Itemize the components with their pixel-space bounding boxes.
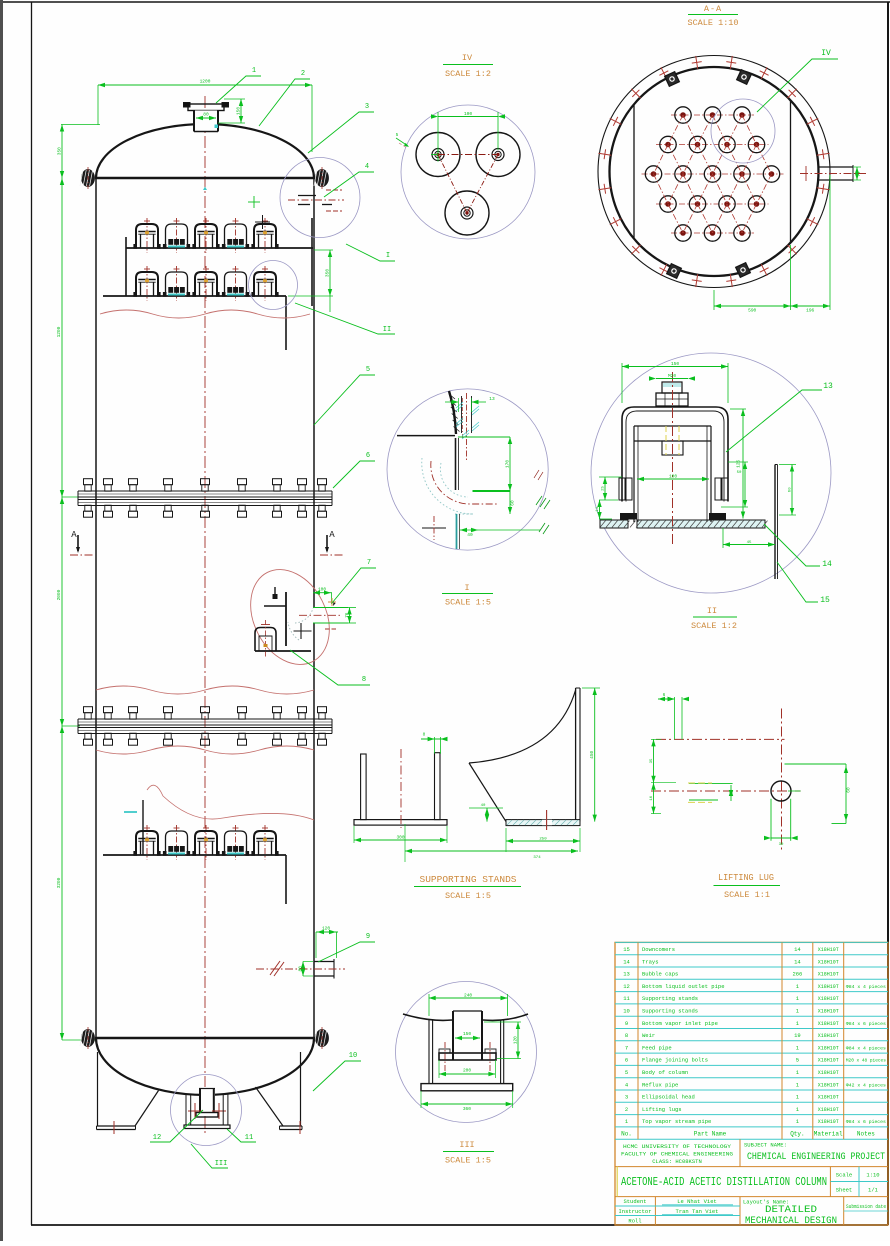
- svg-text:X18H10T: X18H10T: [818, 947, 839, 953]
- svg-text:Le Nhat Viet: Le Nhat Viet: [677, 1198, 717, 1205]
- svg-text:5: 5: [396, 132, 399, 138]
- svg-text:X18H10T: X18H10T: [818, 1107, 839, 1113]
- svg-text:350: 350: [57, 147, 63, 155]
- svg-text:A: A: [329, 530, 335, 540]
- svg-text:2000: 2000: [56, 589, 62, 600]
- svg-text:FACULTY OF CHEMICAL ENGINEERIN: FACULTY OF CHEMICAL ENGINEERING: [621, 1151, 733, 1158]
- svg-text:X18H10T: X18H10T: [818, 1058, 839, 1064]
- svg-text:4: 4: [365, 163, 369, 171]
- svg-text:Scale: Scale: [836, 1172, 853, 1179]
- svg-text:Trays: Trays: [642, 958, 659, 965]
- svg-text:150: 150: [463, 1031, 471, 1037]
- svg-text:1200: 1200: [56, 326, 62, 337]
- svg-text:30: 30: [779, 843, 784, 847]
- svg-text:14: 14: [822, 560, 832, 569]
- svg-text:HCMC UNIVERSITY OF TECHNOLOGY: HCMC UNIVERSITY OF TECHNOLOGY: [623, 1143, 732, 1150]
- svg-text:SCALE 1:5: SCALE 1:5: [445, 1156, 491, 1166]
- svg-text:5: 5: [796, 1057, 799, 1064]
- svg-text:150: 150: [671, 361, 679, 367]
- svg-text:SCALE 1:2: SCALE 1:2: [691, 621, 737, 631]
- svg-text:12: 12: [623, 983, 630, 990]
- svg-text:Reflux pipe: Reflux pipe: [642, 1081, 678, 1088]
- svg-text:M20 x 48 pieces: M20 x 48 pieces: [846, 1058, 886, 1064]
- svg-text:Submission date: Submission date: [846, 1204, 886, 1210]
- svg-text:SUPPORTING STANDS: SUPPORTING STANDS: [420, 875, 517, 885]
- svg-text:Weir: Weir: [642, 1032, 655, 1039]
- svg-text:125: 125: [736, 459, 742, 467]
- svg-text:10: 10: [349, 1052, 357, 1060]
- svg-text:Feed pipe: Feed pipe: [642, 1044, 672, 1051]
- svg-text:7: 7: [625, 1044, 628, 1051]
- svg-text:Φ84 x 4 pieces: Φ84 x 4 pieces: [846, 984, 886, 990]
- svg-text:CHEMICAL ENGINEERING PROJECT: CHEMICAL ENGINEERING PROJECT: [747, 1151, 885, 1163]
- svg-text:Bottom vapor inlet pipe: Bottom vapor inlet pipe: [642, 1020, 718, 1027]
- svg-text:X18H10T: X18H10T: [818, 1119, 839, 1125]
- svg-text:Lifting lugs: Lifting lugs: [642, 1106, 682, 1113]
- svg-text:374: 374: [533, 856, 541, 860]
- svg-text:Φ84 x 4 pieces: Φ84 x 4 pieces: [846, 1045, 886, 1051]
- svg-text:3: 3: [365, 103, 369, 111]
- svg-text:X18H10T: X18H10T: [818, 1009, 839, 1015]
- svg-text:X18H10T: X18H10T: [818, 959, 839, 965]
- svg-text:13: 13: [623, 971, 630, 978]
- svg-text:100: 100: [669, 474, 677, 480]
- svg-text:CLASS: HC08KSTN: CLASS: HC08KSTN: [652, 1158, 702, 1165]
- svg-text:SCALE 1:10: SCALE 1:10: [687, 18, 738, 28]
- svg-text:X18H10T: X18H10T: [818, 972, 839, 978]
- svg-text:X18H10T: X18H10T: [818, 984, 839, 990]
- svg-text:5: 5: [366, 366, 370, 374]
- svg-text:6: 6: [366, 452, 370, 460]
- svg-text:14: 14: [794, 946, 801, 953]
- svg-text:Downcomers: Downcomers: [642, 946, 675, 953]
- svg-text:8: 8: [423, 732, 426, 738]
- svg-text:9: 9: [366, 933, 370, 941]
- svg-text:250: 250: [539, 838, 547, 842]
- svg-text:X18H10T: X18H10T: [818, 1045, 839, 1051]
- svg-text:14: 14: [623, 958, 630, 965]
- svg-text:X18H10T: X18H10T: [818, 1095, 839, 1101]
- svg-text:11: 11: [623, 995, 630, 1002]
- svg-text:16: 16: [650, 795, 654, 800]
- svg-text:80: 80: [298, 966, 304, 972]
- svg-text:6: 6: [625, 1057, 628, 1064]
- svg-text:Supporting stands: Supporting stands: [642, 1008, 698, 1015]
- svg-text:170: 170: [505, 460, 511, 468]
- svg-text:ACETONE-ACID ACETIC DISTILLATI: ACETONE-ACID ACETIC DISTILLATION COLUMN: [621, 1176, 827, 1189]
- svg-text:Qty.: Qty.: [790, 1131, 804, 1138]
- svg-text:120: 120: [513, 1036, 519, 1044]
- svg-text:SCALE 1:5: SCALE 1:5: [445, 598, 491, 608]
- svg-text:360: 360: [463, 1106, 471, 1112]
- svg-text:III: III: [459, 1140, 474, 1150]
- svg-text:13: 13: [823, 382, 833, 391]
- svg-text:150: 150: [236, 107, 242, 115]
- svg-text:Notes: Notes: [857, 1131, 875, 1138]
- svg-text:5: 5: [625, 1069, 628, 1076]
- svg-text:350: 350: [325, 269, 331, 277]
- svg-text:15: 15: [820, 596, 830, 605]
- svg-text:Tran Tan Viet: Tran Tan Viet: [676, 1208, 719, 1215]
- svg-text:Φ42 x 4 pieces: Φ42 x 4 pieces: [846, 1082, 886, 1088]
- svg-text:Bottom liquid outlet pipe: Bottom liquid outlet pipe: [642, 983, 725, 990]
- svg-text:6: 6: [663, 692, 666, 698]
- svg-text:Instructor: Instructor: [618, 1208, 651, 1215]
- svg-text:12: 12: [153, 1134, 161, 1142]
- svg-text:240: 240: [464, 993, 472, 999]
- svg-text:120: 120: [322, 926, 330, 932]
- svg-text:Φ84 x 6 pieces: Φ84 x 6 pieces: [846, 1021, 886, 1027]
- svg-text:Body of column: Body of column: [642, 1069, 688, 1076]
- svg-text:IV: IV: [821, 49, 831, 58]
- svg-text:Φ84 x 6 pieces: Φ84 x 6 pieces: [846, 1119, 886, 1125]
- svg-text:II: II: [383, 326, 391, 334]
- svg-text:60: 60: [789, 487, 793, 492]
- svg-text:Material: Material: [814, 1131, 843, 1138]
- svg-text:A-A: A-A: [704, 4, 722, 14]
- svg-text:11: 11: [245, 1134, 253, 1142]
- svg-text:76: 76: [344, 612, 350, 618]
- svg-text:MECHANICAL DESIGN: MECHANICAL DESIGN: [745, 1215, 837, 1227]
- svg-text:100: 100: [464, 111, 472, 117]
- svg-text:X18H10T: X18H10T: [818, 1082, 839, 1088]
- svg-text:I: I: [464, 583, 469, 593]
- svg-text:M20: M20: [668, 373, 676, 379]
- svg-text:13: 13: [489, 396, 495, 402]
- svg-text:14: 14: [794, 958, 801, 965]
- svg-text:Flange joining bolts: Flange joining bolts: [642, 1057, 708, 1064]
- svg-text:450: 450: [589, 750, 595, 758]
- svg-text:3200: 3200: [56, 877, 62, 888]
- svg-text:Sheet: Sheet: [836, 1187, 853, 1194]
- svg-text:1/1: 1/1: [868, 1187, 879, 1194]
- svg-text:25: 25: [602, 486, 606, 491]
- svg-text:III: III: [215, 1160, 228, 1168]
- svg-text:1:10: 1:10: [866, 1172, 879, 1179]
- svg-text:No.: No.: [621, 1131, 632, 1138]
- svg-text:SCALE 1:5: SCALE 1:5: [445, 891, 491, 901]
- svg-text:19: 19: [794, 1032, 801, 1039]
- svg-text:X18H10T: X18H10T: [818, 1033, 839, 1039]
- svg-text:196: 196: [806, 308, 814, 314]
- svg-text:9: 9: [625, 1020, 628, 1027]
- svg-text:X18H10T: X18H10T: [818, 1070, 839, 1076]
- svg-text:40: 40: [467, 532, 473, 538]
- svg-text:X18H10T: X18H10T: [818, 996, 839, 1002]
- svg-text:14: 14: [596, 507, 600, 512]
- svg-text:SCALE 1:2: SCALE 1:2: [445, 69, 491, 79]
- svg-text:300: 300: [396, 835, 404, 841]
- svg-text:Roll: Roll: [628, 1217, 641, 1224]
- svg-text:II: II: [707, 606, 717, 616]
- svg-text:Student: Student: [623, 1198, 646, 1205]
- svg-text:8: 8: [625, 1032, 628, 1039]
- svg-text:2: 2: [301, 70, 305, 78]
- svg-text:60: 60: [510, 500, 516, 506]
- svg-text:1: 1: [252, 67, 256, 75]
- svg-text:590: 590: [748, 308, 756, 314]
- svg-text:SCALE 1:1: SCALE 1:1: [724, 890, 770, 900]
- svg-text:X18H10T: X18H10T: [818, 1021, 839, 1027]
- svg-text:35: 35: [650, 758, 654, 763]
- svg-text:200: 200: [463, 1068, 471, 1074]
- svg-text:A: A: [71, 530, 77, 540]
- svg-text:SUBJECT NAME:: SUBJECT NAME:: [744, 1142, 787, 1149]
- svg-text:40: 40: [481, 804, 486, 808]
- svg-text:Part Name: Part Name: [694, 1131, 727, 1138]
- svg-text:IV: IV: [462, 53, 473, 63]
- svg-text:60: 60: [846, 787, 852, 793]
- svg-text:7: 7: [367, 559, 371, 567]
- svg-text:100: 100: [318, 587, 326, 593]
- svg-text:266: 266: [792, 971, 802, 978]
- svg-text:45: 45: [747, 541, 752, 545]
- svg-text:2: 2: [625, 1106, 628, 1113]
- svg-text:LIFTING LUG: LIFTING LUG: [718, 873, 774, 883]
- svg-text:8: 8: [362, 676, 366, 684]
- svg-text:Supporting stands: Supporting stands: [642, 995, 698, 1002]
- svg-text:Ellipsoidal head: Ellipsoidal head: [642, 1094, 695, 1101]
- svg-text:80: 80: [203, 112, 209, 118]
- svg-text:Top vapor stream pipe: Top vapor stream pipe: [642, 1118, 711, 1125]
- svg-text:3: 3: [625, 1094, 628, 1101]
- svg-text:15: 15: [623, 946, 630, 953]
- svg-text:10: 10: [623, 1008, 630, 1015]
- svg-text:I: I: [386, 252, 390, 260]
- svg-text:1200: 1200: [200, 79, 211, 85]
- svg-text:50: 50: [737, 471, 742, 475]
- svg-text:Bubble caps: Bubble caps: [642, 971, 678, 978]
